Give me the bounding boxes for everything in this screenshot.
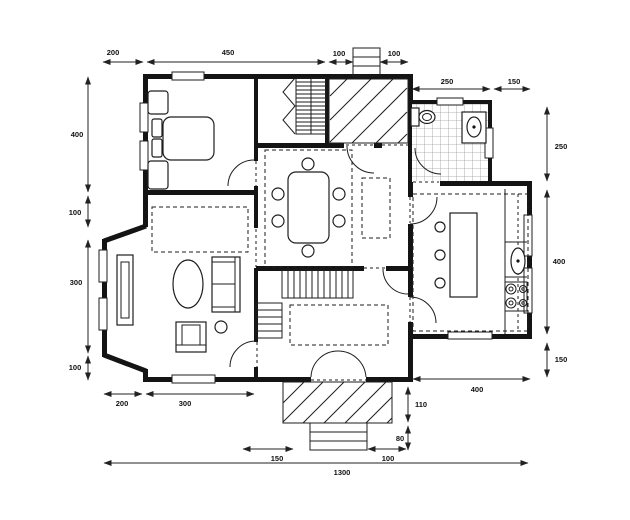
armchair <box>176 322 206 352</box>
dining-chair <box>272 188 284 200</box>
living-room-window <box>172 375 215 383</box>
hall-staircase <box>256 270 353 338</box>
dim-label: 150 <box>271 454 284 463</box>
dim-label: 450 <box>222 48 235 57</box>
dim-label: 150 <box>555 355 568 364</box>
pillow-2 <box>152 139 162 157</box>
kitchen-top-door-arc <box>410 197 437 224</box>
dim-label: 200 <box>107 48 120 57</box>
bathroom-sink <box>462 112 486 143</box>
bedroom-top-window <box>172 72 204 80</box>
front-steps <box>310 423 367 450</box>
living-rug <box>152 207 248 252</box>
dim-label: 300 <box>70 278 83 287</box>
hall-rug <box>290 305 388 345</box>
dim-label: 400 <box>71 130 84 139</box>
bay-window-2 <box>99 298 107 330</box>
dim-label: 150 <box>508 77 521 86</box>
dim-label: 300 <box>179 399 192 408</box>
front-porch <box>283 382 392 450</box>
dim-label: 110 <box>415 400 427 409</box>
kitchen-bottom-window <box>448 332 492 339</box>
pillow-1 <box>152 119 162 137</box>
entrance-door-right-arc <box>338 351 366 377</box>
side-table <box>215 321 227 333</box>
stair-break-line <box>283 78 295 134</box>
dim-label: 250 <box>441 77 454 86</box>
sideboard-outline <box>362 178 390 238</box>
hall-corridor-door-arc <box>383 269 408 294</box>
dining-chair <box>302 158 314 170</box>
dining-chair <box>272 215 284 227</box>
bedroom-door-arc <box>228 160 254 186</box>
nightstand-bottom <box>148 161 168 189</box>
dining-chair <box>302 245 314 257</box>
oval-table <box>173 260 203 308</box>
dim-label: 400 <box>471 385 484 394</box>
dining-chair <box>333 215 345 227</box>
dim-label: 1300 <box>334 468 351 477</box>
dim-label: 200 <box>116 399 129 408</box>
dining-table <box>288 172 329 243</box>
dim-label: 100 <box>388 49 401 58</box>
sofa <box>212 257 240 312</box>
bed <box>163 117 214 160</box>
bay-window-1 <box>99 250 107 282</box>
dim-label: 400 <box>553 257 566 266</box>
stool <box>435 222 445 232</box>
kitchen-island <box>450 213 477 297</box>
floor-plan-canvas: 200 450 100 100 250 150 400 100 300 100 … <box>0 0 630 520</box>
back-steps <box>353 48 380 76</box>
entrance-door-left-arc <box>311 351 338 377</box>
upper-stair-flight <box>283 78 326 134</box>
bedroom-furniture <box>148 91 214 189</box>
nightstand-top <box>148 91 168 114</box>
living-hall-door-arc <box>230 341 256 367</box>
dim-label: 100 <box>69 208 82 217</box>
floor-plan-drawing: 200 450 100 100 250 150 400 100 300 100 … <box>0 0 630 520</box>
dining-chair <box>333 188 345 200</box>
stool <box>435 278 445 288</box>
dim-label: 100 <box>382 454 395 463</box>
dim-label: 250 <box>555 142 568 151</box>
kitchen-sink <box>511 248 525 274</box>
dim-label: 80 <box>396 434 404 443</box>
kitchen-bottom-door-arc <box>410 297 436 323</box>
bathroom-top-window <box>437 98 463 105</box>
dim-label: 100 <box>69 363 82 372</box>
dim-label: 100 <box>333 49 346 58</box>
bedroom-left-window-2 <box>140 141 148 170</box>
kitchen-fixtures <box>413 189 528 334</box>
stool <box>435 250 445 260</box>
console-shelf <box>117 255 133 325</box>
dining-room-furniture <box>265 150 390 267</box>
bedroom-left-window-1 <box>140 103 148 132</box>
